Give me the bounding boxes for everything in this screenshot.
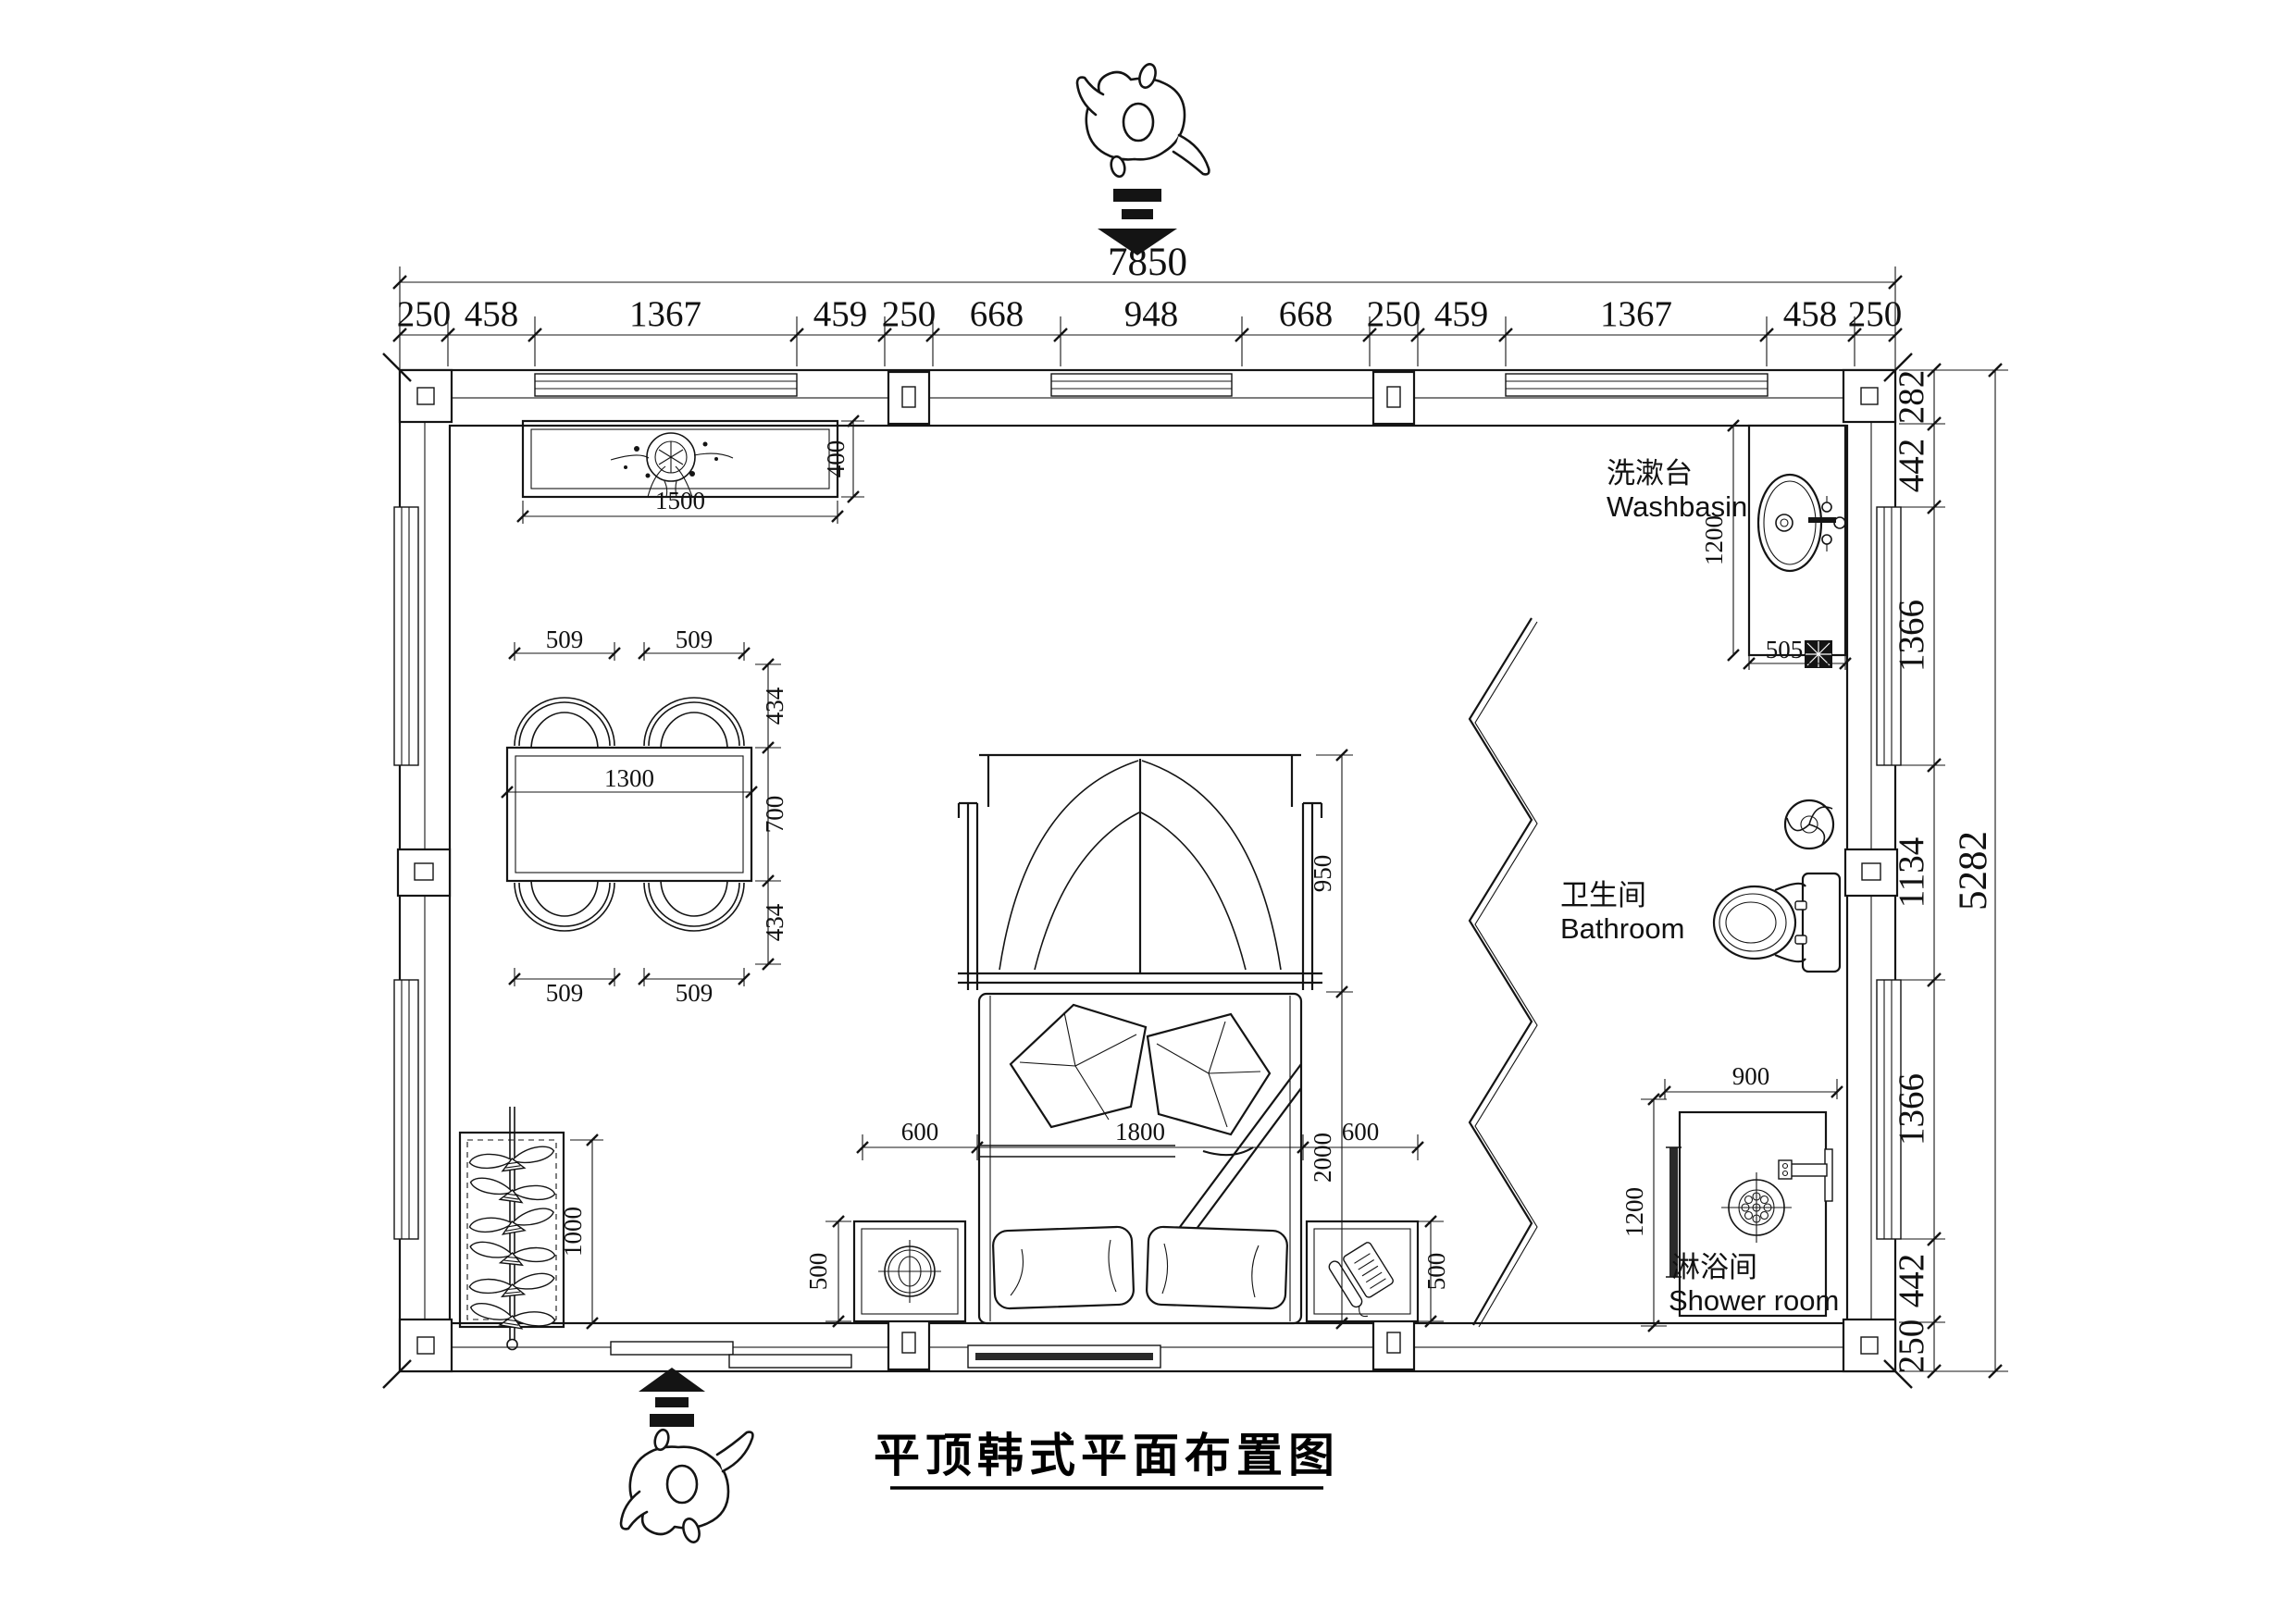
corner-post-bl xyxy=(383,1319,452,1388)
toilet-area: 卫生间 Bathroom xyxy=(1560,800,1840,972)
dim-chair-d2: 434 xyxy=(761,903,788,941)
dim-right-2: 1366 xyxy=(1892,600,1931,672)
dim-top-1: 458 xyxy=(465,294,519,334)
dim-chair-w1: 509 xyxy=(546,626,584,653)
post-top-1 xyxy=(888,372,929,424)
dining-set: 509 509 1300 434 700 434 509 509 xyxy=(502,626,788,1007)
dim-chair-w2: 509 xyxy=(676,626,714,653)
dim-chair-d1: 434 xyxy=(761,687,788,725)
folding-partition xyxy=(1470,618,1537,1327)
dim-chair-w3: 509 xyxy=(546,979,584,1007)
post-bottom-1 xyxy=(888,1318,929,1369)
nightstand-right xyxy=(1307,1221,1418,1321)
shower-head xyxy=(1721,1172,1792,1243)
spiral-drain xyxy=(1785,800,1833,849)
dim-right-1: 442 xyxy=(1892,439,1931,493)
dim-basin-len: 1200 xyxy=(1700,515,1728,565)
dim-cabinet-w: 1500 xyxy=(655,487,705,514)
dim-top-9: 459 xyxy=(1434,294,1489,334)
bed-pillow-left xyxy=(993,1226,1135,1308)
drawing-title-block: 平顶韩式平面布置图 xyxy=(874,1430,1340,1488)
dim-right-0: 282 xyxy=(1892,370,1931,425)
dim-cabinet-d: 400 xyxy=(822,440,850,478)
dim-stand-l: 500 xyxy=(804,1253,832,1291)
dim-top-2: 1367 xyxy=(629,294,701,334)
dim-right-total: 5282 xyxy=(1952,831,1995,911)
dim-top-0: 250 xyxy=(397,294,452,334)
post-top-2 xyxy=(1373,372,1414,424)
dim-bed-side-l: 600 xyxy=(901,1118,939,1146)
dim-top-11: 458 xyxy=(1783,294,1838,334)
wardrobe: 1000 xyxy=(460,1107,603,1350)
entry-sliding-door xyxy=(611,1342,851,1368)
chair xyxy=(515,698,614,750)
dim-wardrobe: 1000 xyxy=(559,1207,587,1257)
window-top-center xyxy=(1051,374,1232,396)
chair xyxy=(644,879,744,931)
window-top-right xyxy=(1506,374,1768,396)
dim-shower-w: 900 xyxy=(1732,1062,1770,1090)
window-bottom-center xyxy=(968,1345,1160,1368)
person-bottom xyxy=(621,1429,752,1544)
dim-right-6: 250 xyxy=(1892,1319,1931,1374)
bed-group: 600 1800 600 950 2000 500 500 xyxy=(804,750,1450,1329)
label-bathroom-en: Bathroom xyxy=(1560,912,1684,945)
dim-bed-side-r: 600 xyxy=(1342,1118,1380,1146)
dim-right-4: 1366 xyxy=(1892,1073,1931,1146)
post-right-mid xyxy=(1845,849,1897,896)
bed-headboard-canopy xyxy=(958,755,1322,990)
shower-arm xyxy=(1779,1149,1832,1201)
dim-top-7: 668 xyxy=(1279,294,1334,334)
person-top xyxy=(1077,62,1209,178)
corner-post-tl xyxy=(383,353,452,422)
window-top-left xyxy=(535,374,797,396)
label-bathroom-zh: 卫生间 xyxy=(1560,879,1646,911)
drawing-title: 平顶韩式平面布置图 xyxy=(874,1430,1340,1481)
dim-top-3: 459 xyxy=(813,294,868,334)
dim-top-4: 250 xyxy=(882,294,937,334)
hangers xyxy=(468,1145,555,1333)
washbasin-area: 1200 505 洗漱台 Washbasin xyxy=(1607,420,1851,670)
dim-top-10: 1367 xyxy=(1600,294,1672,334)
toilet xyxy=(1714,873,1840,972)
entry-arrow-bottom xyxy=(639,1368,705,1427)
dim-bed-w: 1800 xyxy=(1115,1118,1165,1146)
window-left-upper xyxy=(394,507,418,765)
shower-area: 900 1200 淋浴间 Shower room xyxy=(1620,1062,1843,1332)
dim-top-12: 250 xyxy=(1848,294,1903,334)
chair xyxy=(515,879,614,931)
label-shower-zh: 淋浴间 xyxy=(1671,1251,1757,1283)
tv-cabinet: 1500 400 xyxy=(517,415,864,524)
dim-table-d: 700 xyxy=(761,796,788,834)
dim-shower-d: 1200 xyxy=(1620,1187,1648,1237)
dim-right-3: 1134 xyxy=(1892,837,1931,909)
label-washbasin-zh: 洗漱台 xyxy=(1607,457,1693,489)
post-bottom-2 xyxy=(1373,1318,1414,1369)
dim-top-6: 948 xyxy=(1124,294,1179,334)
bed-pillow-right xyxy=(1147,1226,1288,1308)
dim-table-w: 1300 xyxy=(604,764,654,792)
dim-basin-w: 505 xyxy=(1766,636,1804,663)
label-shower-en: Shower room xyxy=(1669,1284,1839,1317)
dim-bed-len: 2000 xyxy=(1309,1133,1336,1183)
chair xyxy=(644,698,744,750)
floor-plan-page: 7850 250 458 1367 459 250 668 948 668 25… xyxy=(0,0,2296,1623)
post-left-mid xyxy=(398,849,450,896)
dim-chair-w4: 509 xyxy=(676,979,714,1007)
dim-stand-r: 500 xyxy=(1422,1253,1450,1291)
dim-top-5: 668 xyxy=(970,294,1024,334)
window-left-lower xyxy=(394,980,418,1239)
dim-bed-head: 950 xyxy=(1309,855,1336,893)
label-washbasin-en: Washbasin xyxy=(1607,490,1747,523)
floor-plan-drawing: 7850 250 458 1367 459 250 668 948 668 25… xyxy=(0,0,2296,1623)
dim-top-8: 250 xyxy=(1367,294,1421,334)
dim-right-5: 442 xyxy=(1892,1254,1931,1308)
dim-right: 282 442 1366 1134 1366 442 250 5282 xyxy=(1892,364,2008,1378)
dim-top: 7850 250 458 1367 459 250 668 948 668 25… xyxy=(393,241,1902,370)
nightstand-left xyxy=(854,1221,965,1321)
